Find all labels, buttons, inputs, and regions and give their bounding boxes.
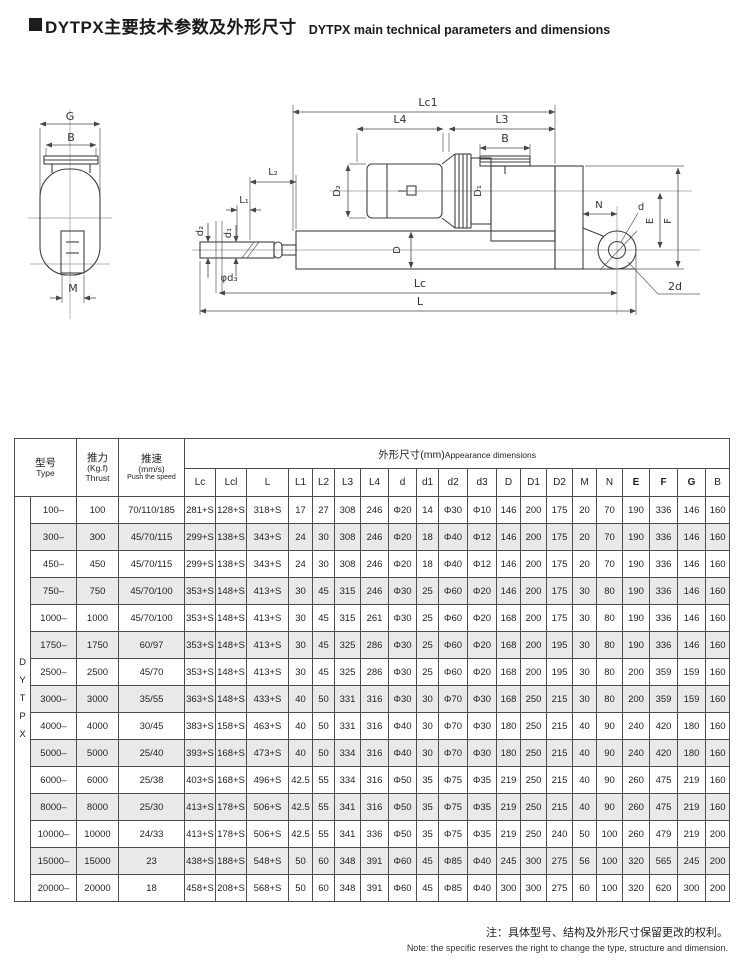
dim-col-header-l2: L2 [313, 469, 335, 497]
cell-l4: 246 [361, 578, 389, 605]
catalog-page: DYTPX主要技术参数及外形尺寸 DYTPX main technical pa… [0, 0, 742, 971]
cell-l3: 331 [335, 686, 361, 713]
cell-m: 40 [573, 713, 597, 740]
cell-f: 359 [650, 686, 678, 713]
cell-f: 420 [650, 713, 678, 740]
cell-l4: 316 [361, 713, 389, 740]
col-header-thrust: 推力 (Kg.f) Thrust [77, 439, 119, 497]
cell-d3: Φ35 [468, 767, 497, 794]
cell-b: 160 [706, 659, 730, 686]
cell-d2: 215 [547, 740, 573, 767]
cell-b: 160 [706, 686, 730, 713]
cell-f: 336 [650, 578, 678, 605]
cell-d1: 250 [521, 767, 547, 794]
cell-d3: Φ40 [468, 848, 497, 875]
cell-d3: Φ12 [468, 551, 497, 578]
dim-col-header-n: N [597, 469, 623, 497]
cell-b: 160 [706, 578, 730, 605]
cell-e: 260 [623, 821, 650, 848]
cell-e: 190 [623, 578, 650, 605]
cell-l1: 40 [289, 740, 313, 767]
cell-d2: Φ40 [439, 524, 468, 551]
dim-col-header-l: L [247, 469, 289, 497]
cell-d: 180 [497, 713, 521, 740]
cell-d1: 300 [521, 848, 547, 875]
cell-d: Φ20 [389, 524, 417, 551]
cell-l: 568+S [247, 875, 289, 902]
cell-speed: 35/55 [119, 686, 185, 713]
end-view: G B M [28, 109, 112, 319]
cell-thrust: 2500 [77, 659, 119, 686]
table-row: 1000–100045/70/100353+S148+S413+S3045315… [15, 605, 730, 632]
page-title-zh: DYTPX主要技术参数及外形尺寸 [29, 13, 297, 38]
table-row: 10000–1000024/33413+S178+S506+S42.555341… [15, 821, 730, 848]
cell-n: 100 [597, 821, 623, 848]
cell-type: 3000– [31, 686, 77, 713]
cell-l4: 246 [361, 524, 389, 551]
cell-lcl: 148+S [216, 578, 247, 605]
col-header-dims-en: Appearance dimensions [445, 450, 536, 460]
cell-thrust: 3000 [77, 686, 119, 713]
cell-lcl: 178+S [216, 794, 247, 821]
cell-d: 146 [497, 497, 521, 524]
cell-d2: 175 [547, 551, 573, 578]
table-row: 5000–500025/40393+S168+S473+S4050334316Φ… [15, 740, 730, 767]
cell-b: 200 [706, 848, 730, 875]
cell-f: 336 [650, 524, 678, 551]
dim-label-d2-cap: D₂ [332, 185, 343, 197]
cell-n: 100 [597, 875, 623, 902]
cell-speed: 60/97 [119, 632, 185, 659]
cell-d: 300 [497, 875, 521, 902]
cell-d: Φ40 [389, 740, 417, 767]
cell-type: 4000– [31, 713, 77, 740]
col-header-type-en: Type [15, 469, 76, 478]
footer-notes: 注：具体型号、结构及外形尺寸保留更改的权利。 Note: the specifi… [407, 924, 728, 953]
cell-thrust: 6000 [77, 767, 119, 794]
cell-n: 90 [597, 740, 623, 767]
cell-g: 219 [678, 821, 706, 848]
cell-l2: 55 [313, 821, 335, 848]
col-header-thrust-en: Thrust [77, 474, 118, 483]
note-zh: 注：具体型号、结构及外形尺寸保留更改的权利。 [407, 924, 728, 940]
cell-d2: Φ30 [439, 497, 468, 524]
cell-l4: 391 [361, 848, 389, 875]
cell-d1: 200 [521, 605, 547, 632]
cell-speed: 18 [119, 875, 185, 902]
cell-d1: 30 [417, 713, 439, 740]
dim-col-header-l1: L1 [289, 469, 313, 497]
cell-f: 336 [650, 605, 678, 632]
cell-lcl: 168+S [216, 740, 247, 767]
cell-l2: 55 [313, 794, 335, 821]
cell-l4: 336 [361, 821, 389, 848]
page-header: DYTPX主要技术参数及外形尺寸 DYTPX main technical pa… [0, 0, 742, 38]
cell-l2: 45 [313, 632, 335, 659]
cell-lcl: 148+S [216, 686, 247, 713]
cell-d: Φ40 [389, 713, 417, 740]
cell-l: 433+S [247, 686, 289, 713]
table-row: 450–45045/70/115299+S138+S343+S243030824… [15, 551, 730, 578]
cell-l2: 60 [313, 848, 335, 875]
cell-e: 240 [623, 713, 650, 740]
cell-type: 10000– [31, 821, 77, 848]
cell-lc: 383+S [185, 713, 216, 740]
cell-e: 240 [623, 740, 650, 767]
cell-l3: 308 [335, 524, 361, 551]
cell-l: 496+S [247, 767, 289, 794]
dim-label-lc1: Lc1 [418, 96, 437, 109]
cell-l: 413+S [247, 578, 289, 605]
cell-lc: 299+S [185, 524, 216, 551]
cell-speed: 45/70 [119, 659, 185, 686]
cell-e: 190 [623, 632, 650, 659]
note-en: Note: the specific reserves the right to… [407, 943, 728, 953]
cell-d3: Φ40 [468, 875, 497, 902]
cell-b: 160 [706, 740, 730, 767]
cell-d: Φ30 [389, 686, 417, 713]
cell-d: 168 [497, 632, 521, 659]
cell-d: Φ30 [389, 578, 417, 605]
cell-speed: 23 [119, 848, 185, 875]
cell-l4: 246 [361, 551, 389, 578]
cell-e: 190 [623, 524, 650, 551]
cell-lc: 353+S [185, 659, 216, 686]
cell-l3: 348 [335, 848, 361, 875]
cell-type: 20000– [31, 875, 77, 902]
cell-m: 20 [573, 524, 597, 551]
spec-table-body: D Y T P X100–10070/110/185281+S128+S318+… [15, 497, 730, 902]
cell-l2: 30 [313, 524, 335, 551]
cell-d1: 30 [417, 740, 439, 767]
cell-e: 320 [623, 875, 650, 902]
cell-g: 146 [678, 524, 706, 551]
cell-l1: 40 [289, 686, 313, 713]
cell-b: 160 [706, 794, 730, 821]
cell-d1: 200 [521, 578, 547, 605]
cell-l1: 50 [289, 848, 313, 875]
cell-e: 260 [623, 794, 650, 821]
cell-d1: 35 [417, 821, 439, 848]
side-view: φd₃ d₂ d₁ L₁ L₂ Lc1 L [192, 96, 700, 315]
dim-col-header-lc: Lc [185, 469, 216, 497]
cell-g: 180 [678, 740, 706, 767]
cell-type: 5000– [31, 740, 77, 767]
cell-thrust: 1750 [77, 632, 119, 659]
cell-thrust: 300 [77, 524, 119, 551]
cell-n: 70 [597, 551, 623, 578]
cell-l: 473+S [247, 740, 289, 767]
cell-d2: 195 [547, 659, 573, 686]
cell-l3: 341 [335, 794, 361, 821]
cell-lc: 353+S [185, 632, 216, 659]
cell-l2: 45 [313, 659, 335, 686]
cell-d: 168 [497, 659, 521, 686]
cell-m: 56 [573, 848, 597, 875]
cell-l: 343+S [247, 551, 289, 578]
cell-speed: 45/70/100 [119, 578, 185, 605]
cell-m: 50 [573, 821, 597, 848]
cell-d: Φ50 [389, 821, 417, 848]
cell-l3: 325 [335, 632, 361, 659]
col-header-dims-zh: 外形尺寸(mm) [378, 449, 445, 461]
col-header-speed-unit: (mm/s) [119, 465, 184, 474]
cell-d1: 250 [521, 740, 547, 767]
table-row: 6000–600025/38403+S168+S496+S42.55533431… [15, 767, 730, 794]
cell-l1: 42.5 [289, 794, 313, 821]
cell-type: 1750– [31, 632, 77, 659]
cell-thrust: 100 [77, 497, 119, 524]
cell-l1: 30 [289, 605, 313, 632]
cell-l3: 341 [335, 821, 361, 848]
cell-f: 475 [650, 794, 678, 821]
cell-d1: 18 [417, 551, 439, 578]
cell-lc: 413+S [185, 794, 216, 821]
cell-d2: 215 [547, 713, 573, 740]
cell-d2: Φ60 [439, 605, 468, 632]
cell-m: 40 [573, 794, 597, 821]
cell-g: 146 [678, 551, 706, 578]
dim-col-header-d1: D1 [521, 469, 547, 497]
cell-f: 420 [650, 740, 678, 767]
cell-lcl: 138+S [216, 551, 247, 578]
cell-e: 190 [623, 497, 650, 524]
cell-type: 8000– [31, 794, 77, 821]
cell-g: 146 [678, 497, 706, 524]
cell-l1: 30 [289, 659, 313, 686]
cell-d2: Φ40 [439, 551, 468, 578]
cell-thrust: 8000 [77, 794, 119, 821]
cell-d2: Φ70 [439, 686, 468, 713]
cell-l1: 30 [289, 578, 313, 605]
table-row: 4000–400030/45383+S158+S463+S4050331316Φ… [15, 713, 730, 740]
dim-label-n: N [595, 200, 602, 211]
cell-l: 463+S [247, 713, 289, 740]
cell-m: 20 [573, 497, 597, 524]
cell-l1: 42.5 [289, 821, 313, 848]
cell-d1: 200 [521, 497, 547, 524]
cell-d2: 275 [547, 848, 573, 875]
cell-l: 506+S [247, 821, 289, 848]
table-row: 8000–800025/30413+S178+S506+S42.55534131… [15, 794, 730, 821]
cell-g: 159 [678, 686, 706, 713]
cell-l1: 24 [289, 551, 313, 578]
table-row: 1750–175060/97353+S148+S413+S3045325286Φ… [15, 632, 730, 659]
page-title-en: DYTPX main technical parameters and dime… [309, 23, 610, 38]
cell-m: 30 [573, 605, 597, 632]
cell-type: 15000– [31, 848, 77, 875]
cell-d2: 175 [547, 605, 573, 632]
cell-type: 300– [31, 524, 77, 551]
table-row: 300–30045/70/115299+S138+S343+S243030824… [15, 524, 730, 551]
cell-speed: 45/70/100 [119, 605, 185, 632]
cell-b: 160 [706, 632, 730, 659]
cell-type: 100– [31, 497, 77, 524]
dim-label-d1: d₁ [223, 228, 234, 238]
cell-d1: 25 [417, 659, 439, 686]
cell-l1: 30 [289, 632, 313, 659]
cell-m: 30 [573, 659, 597, 686]
cell-d2: Φ75 [439, 767, 468, 794]
cell-l3: 325 [335, 659, 361, 686]
cell-lcl: 178+S [216, 821, 247, 848]
cell-d3: Φ20 [468, 605, 497, 632]
cell-d1: 18 [417, 524, 439, 551]
cell-d3: Φ20 [468, 578, 497, 605]
dim-col-header-m: M [573, 469, 597, 497]
cell-l3: 334 [335, 767, 361, 794]
cell-b: 160 [706, 767, 730, 794]
cell-d1: 35 [417, 794, 439, 821]
dim-col-header-d: D [497, 469, 521, 497]
table-row: D Y T P X100–10070/110/185281+S128+S318+… [15, 497, 730, 524]
cell-d: Φ30 [389, 632, 417, 659]
cell-l1: 42.5 [289, 767, 313, 794]
cell-lcl: 168+S [216, 767, 247, 794]
cell-d2: Φ85 [439, 875, 468, 902]
cell-f: 336 [650, 551, 678, 578]
cell-m: 40 [573, 740, 597, 767]
cell-lc: 353+S [185, 578, 216, 605]
cell-d1: 200 [521, 632, 547, 659]
cell-f: 479 [650, 821, 678, 848]
table-row: 3000–300035/55363+S148+S433+S4050331316Φ… [15, 686, 730, 713]
cell-e: 200 [623, 686, 650, 713]
dim-label-l2: L₂ [268, 167, 278, 178]
cell-speed: 25/38 [119, 767, 185, 794]
cell-b: 160 [706, 605, 730, 632]
cell-lc: 281+S [185, 497, 216, 524]
cell-l3: 348 [335, 875, 361, 902]
dim-label-e: E [645, 218, 656, 224]
cell-speed: 45/70/115 [119, 551, 185, 578]
cell-l4: 316 [361, 767, 389, 794]
cell-d1: 45 [417, 875, 439, 902]
col-header-type: 型号 Type [15, 439, 77, 497]
cell-lcl: 158+S [216, 713, 247, 740]
cell-l: 413+S [247, 605, 289, 632]
cell-d: 245 [497, 848, 521, 875]
cell-n: 80 [597, 578, 623, 605]
cell-thrust: 1000 [77, 605, 119, 632]
dim-col-header-l3: L3 [335, 469, 361, 497]
cell-d: 146 [497, 551, 521, 578]
cell-n: 70 [597, 497, 623, 524]
cell-m: 30 [573, 578, 597, 605]
cell-m: 30 [573, 632, 597, 659]
cell-l1: 17 [289, 497, 313, 524]
cell-d1: 25 [417, 578, 439, 605]
cell-l2: 50 [313, 686, 335, 713]
cell-d1: 45 [417, 848, 439, 875]
cell-n: 80 [597, 686, 623, 713]
cell-b: 200 [706, 821, 730, 848]
cell-l3: 308 [335, 497, 361, 524]
cell-l2: 27 [313, 497, 335, 524]
cell-lc: 363+S [185, 686, 216, 713]
cell-d2: 175 [547, 578, 573, 605]
cell-lcl: 148+S [216, 605, 247, 632]
cell-d2: 240 [547, 821, 573, 848]
cell-n: 80 [597, 632, 623, 659]
cell-d2: Φ85 [439, 848, 468, 875]
cell-g: 159 [678, 659, 706, 686]
cell-d: 219 [497, 794, 521, 821]
cell-l4: 286 [361, 632, 389, 659]
dim-label-l: L [417, 295, 424, 308]
cell-thrust: 5000 [77, 740, 119, 767]
cell-l4: 316 [361, 794, 389, 821]
cell-d2: Φ60 [439, 578, 468, 605]
cell-g: 219 [678, 794, 706, 821]
cell-d1: 200 [521, 659, 547, 686]
dim-label-l4: L4 [393, 113, 406, 126]
page-title-zh-text: DYTPX主要技术参数及外形尺寸 [45, 18, 297, 37]
cell-d1: 35 [417, 767, 439, 794]
cell-speed: 45/70/115 [119, 524, 185, 551]
cell-thrust: 450 [77, 551, 119, 578]
cell-d2: 215 [547, 767, 573, 794]
cell-thrust: 15000 [77, 848, 119, 875]
dim-col-header-b: B [706, 469, 730, 497]
cell-d: 219 [497, 767, 521, 794]
cell-b: 160 [706, 551, 730, 578]
cell-l3: 315 [335, 605, 361, 632]
dim-col-header-lcl: Lcl [216, 469, 247, 497]
dim-label-lc: Lc [414, 277, 426, 290]
cell-l1: 40 [289, 713, 313, 740]
cell-type: 6000– [31, 767, 77, 794]
cell-n: 100 [597, 848, 623, 875]
cell-e: 260 [623, 767, 650, 794]
cell-d1: 200 [521, 551, 547, 578]
cell-speed: 25/40 [119, 740, 185, 767]
cell-l4: 391 [361, 875, 389, 902]
cell-l: 413+S [247, 632, 289, 659]
cell-lcl: 208+S [216, 875, 247, 902]
dim-label-b-left: B [67, 131, 75, 144]
cell-f: 565 [650, 848, 678, 875]
dim-label-m: M [68, 282, 78, 295]
cell-type: 1000– [31, 605, 77, 632]
dim-label-d: d [638, 202, 644, 213]
technical-drawing: G B M [0, 38, 742, 436]
cell-d3: Φ35 [468, 794, 497, 821]
cell-d2: 175 [547, 497, 573, 524]
cell-l4: 261 [361, 605, 389, 632]
table-row: 15000–1500023438+S188+S548+S5060348391Φ6… [15, 848, 730, 875]
cell-d2: 195 [547, 632, 573, 659]
cell-l2: 50 [313, 740, 335, 767]
dim-col-header-d: d [389, 469, 417, 497]
cell-speed: 25/30 [119, 794, 185, 821]
spec-table: 型号 Type 推力 (Kg.f) Thrust 推速 (mm/s) Push … [14, 438, 730, 902]
cell-d: 168 [497, 605, 521, 632]
cell-d2: Φ70 [439, 740, 468, 767]
dim-col-header-d1: d1 [417, 469, 439, 497]
cell-m: 60 [573, 875, 597, 902]
cell-f: 475 [650, 767, 678, 794]
cell-b: 200 [706, 875, 730, 902]
cell-n: 90 [597, 794, 623, 821]
cell-speed: 30/45 [119, 713, 185, 740]
cell-d: Φ60 [389, 875, 417, 902]
cell-b: 160 [706, 713, 730, 740]
dim-label-2d: 2d [668, 280, 682, 293]
cell-d1: 25 [417, 605, 439, 632]
dim-col-header-e: E [623, 469, 650, 497]
cell-e: 200 [623, 659, 650, 686]
